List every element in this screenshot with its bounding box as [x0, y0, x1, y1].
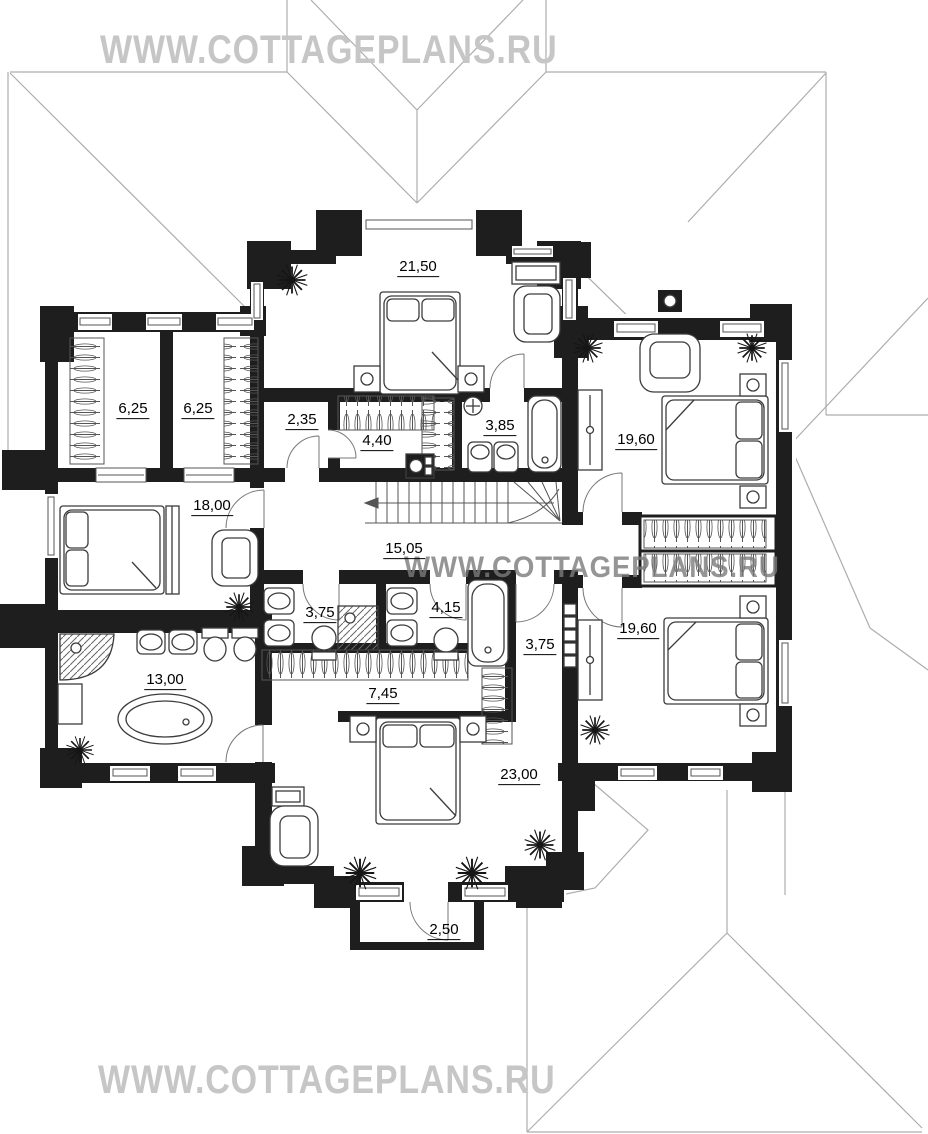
- watermark-middle: WWW.COTTAGEPLANS.RU: [404, 551, 780, 585]
- room-area-label-wardrobe-upper: 4,40: [360, 433, 393, 451]
- room-area-label-bathroom-center: 4,15: [429, 600, 462, 618]
- towel-rail-strip: [564, 604, 576, 667]
- room-area-label-bathroom-big: 13,00: [144, 672, 186, 690]
- room-area-label-balcony: 2,50: [427, 922, 460, 940]
- radiator-right-top: [578, 390, 602, 470]
- room-area-label-corridor-upper: 2,35: [285, 412, 318, 430]
- bathtub-oval: [118, 694, 212, 744]
- chimney-cap: [664, 295, 676, 307]
- room-area-label-bathroom-left: 3,75: [303, 605, 336, 623]
- room-area-label-bedroom-left: 18,00: [191, 498, 233, 516]
- room-area-label-closet-left: 6,25: [116, 401, 149, 419]
- room-area-label-corridor-right: 3,75: [523, 637, 556, 655]
- room-area-label-bedroom-top: 21,50: [397, 259, 439, 277]
- room-area-label-bedroom-right-top: 19,60: [615, 432, 657, 450]
- watermark-bottom: WWW.COTTAGEPLANS.RU: [98, 1058, 555, 1103]
- radiator-right-bottom: [578, 620, 602, 700]
- watermark-top: WWW.COTTAGEPLANS.RU: [100, 28, 557, 73]
- bed-left-bedroom: [60, 506, 179, 594]
- armchair-right-top-bedroom: [640, 334, 700, 392]
- room-area-label-bedroom-right-bottom: 19,60: [617, 621, 659, 639]
- room-area-label-closet-right: 6,25: [181, 401, 214, 419]
- armchair-top-bedroom: [514, 286, 560, 342]
- room-area-label-wardrobe-lower: 7,45: [366, 686, 399, 704]
- room-area-label-bedroom-bottom: 23,00: [498, 767, 540, 785]
- room-area-label-bathroom-upper: 3,85: [483, 418, 516, 436]
- armchair-bottom-bedroom: [270, 806, 318, 866]
- floor-plan-page: WWW.COTTAGEPLANS.RU WWW.COTTAGEPLANS.RU …: [0, 0, 928, 1134]
- room-area-label-hall: 15,05: [383, 541, 425, 559]
- armchair-left-bedroom: [212, 530, 258, 586]
